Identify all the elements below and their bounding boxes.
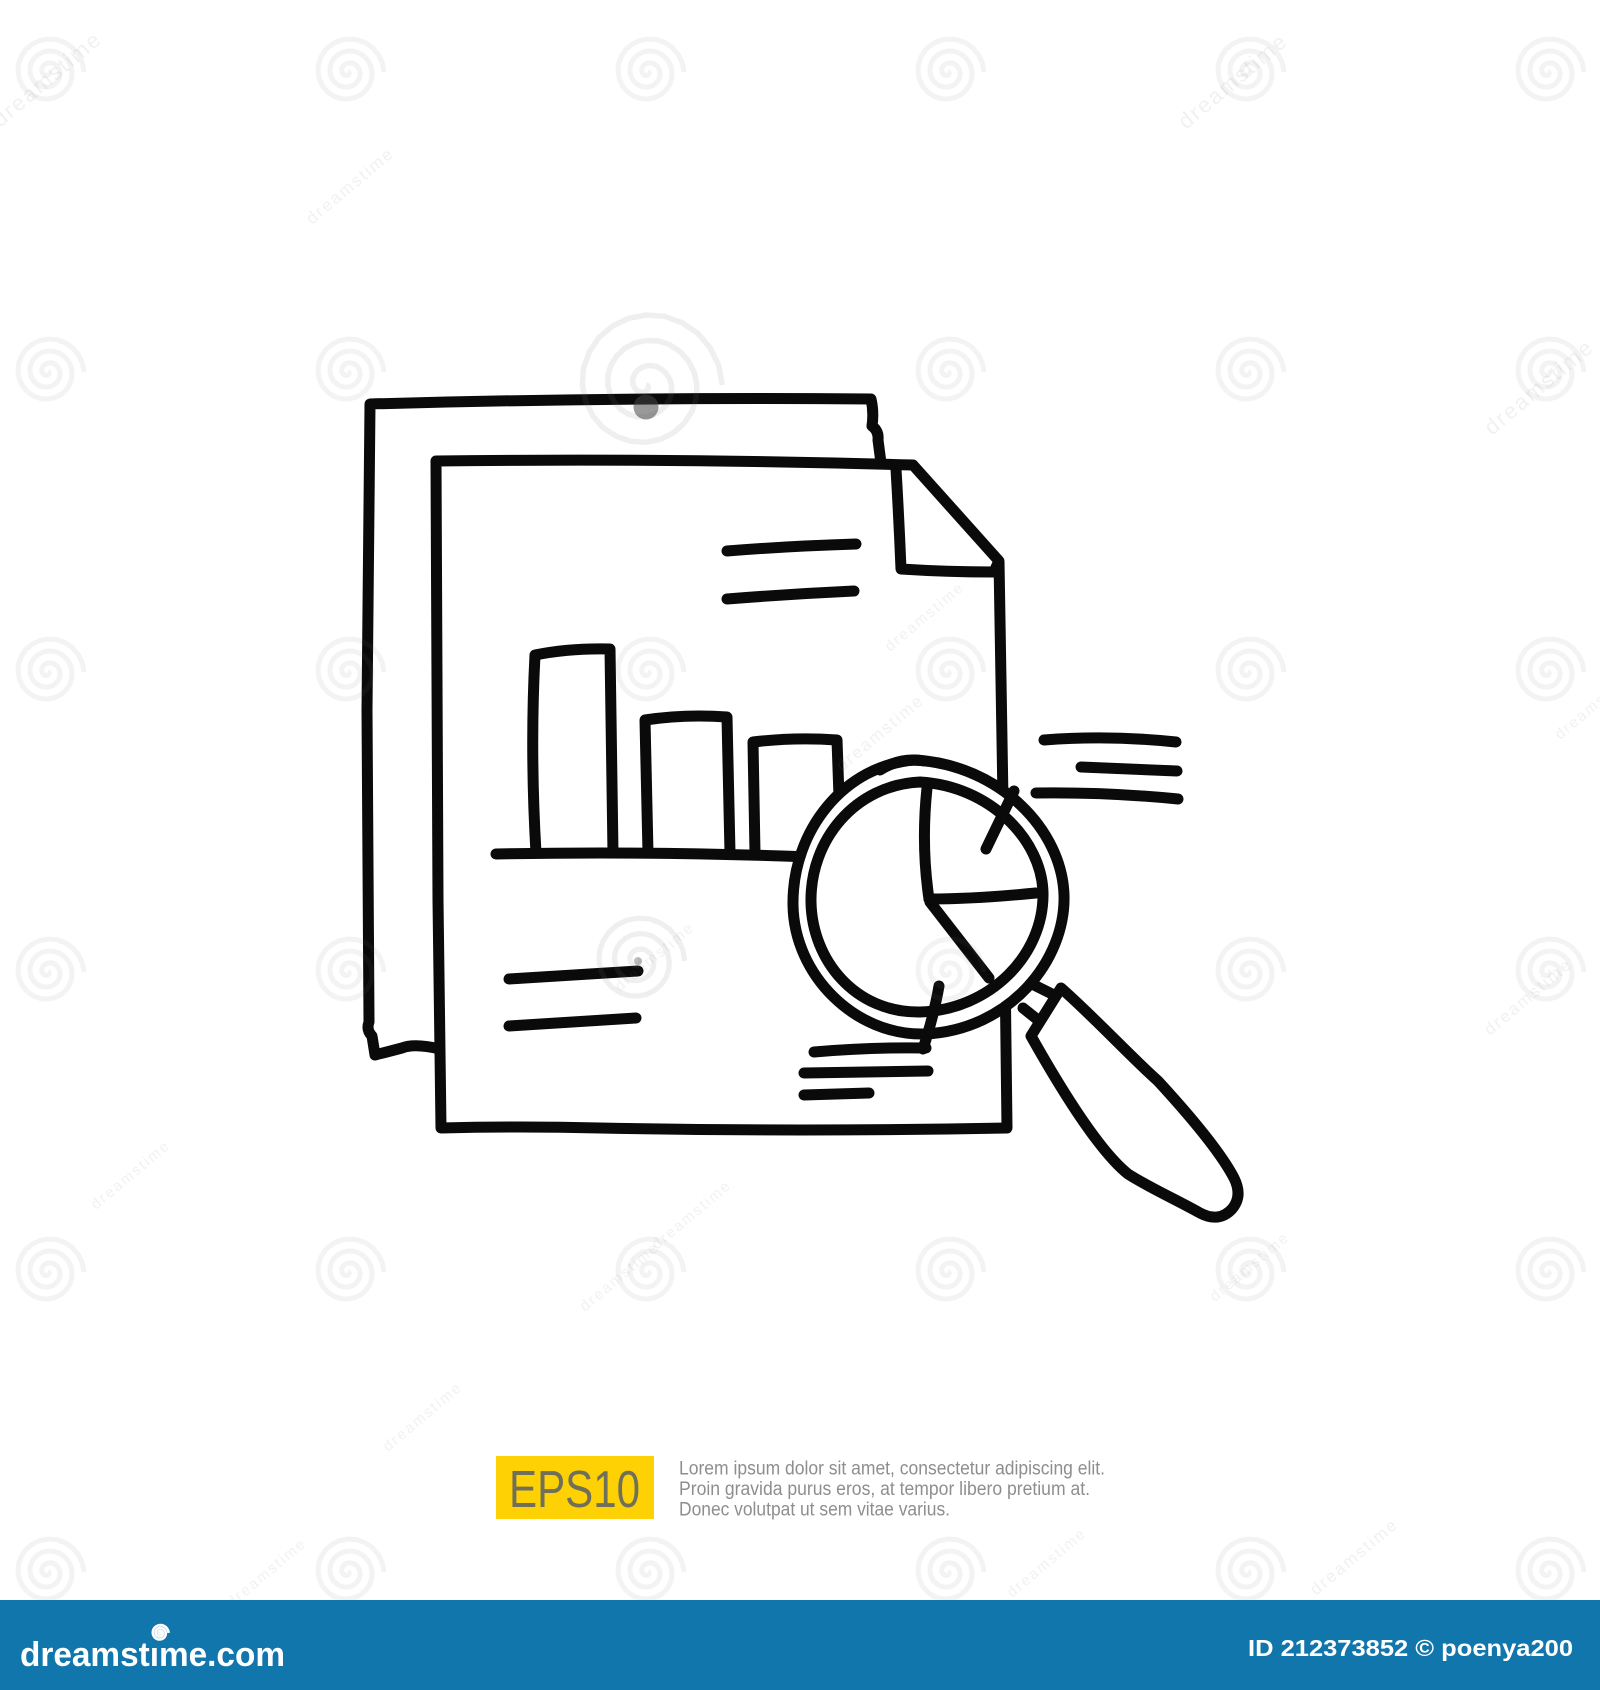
svg-text:Donec volutpat ut sem vitae va: Donec volutpat ut sem vitae varius. (679, 1499, 950, 1520)
svg-text:EPS10: EPS10 (509, 1461, 640, 1519)
svg-text:dreamstıme.com: dreamstıme.com (20, 1636, 285, 1674)
svg-text:Proin gravida purus eros, at t: Proin gravida purus eros, at tempor libe… (679, 1479, 1090, 1500)
svg-text:Lorem ipsum dolor sit amet, co: Lorem ipsum dolor sit amet, consectetur … (679, 1459, 1105, 1480)
svg-text:ID 212373852 © poenya200: ID 212373852 © poenya200 (1248, 1635, 1573, 1661)
